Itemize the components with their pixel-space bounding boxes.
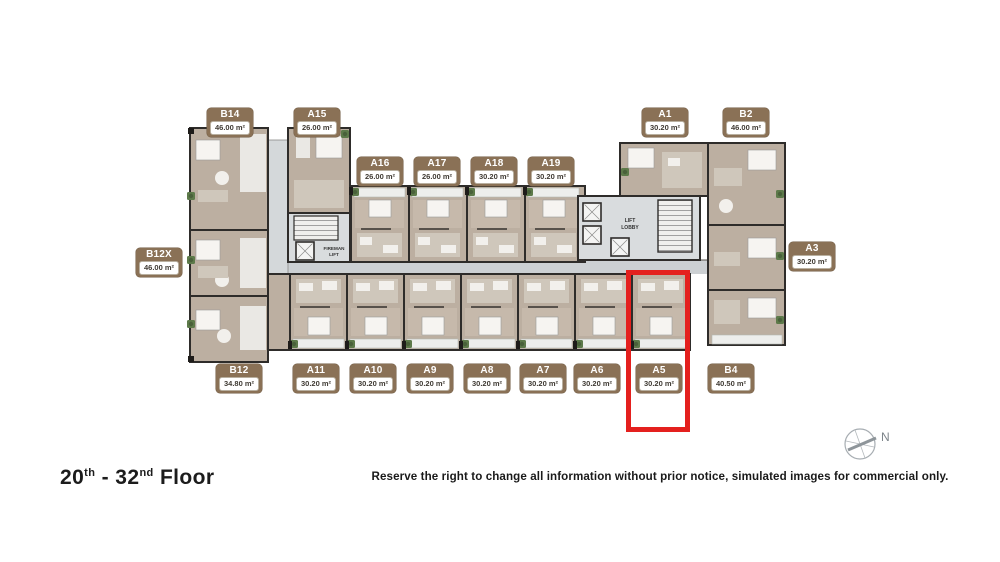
elevator-icon — [583, 226, 601, 244]
floor-from-ordinal: th — [84, 467, 95, 479]
disclaimer-text: Reserve the right to change all informat… — [340, 470, 980, 483]
unit-id: B12X — [136, 248, 182, 261]
unit-a15-plan — [288, 128, 350, 213]
right-wing — [708, 143, 785, 345]
unit-area: 46.00 m² — [726, 121, 766, 135]
unit-area: 30.20 m² — [353, 377, 393, 391]
unit-badge-a7[interactable]: A7 30.20 m² — [520, 364, 566, 393]
unit-badge-a15[interactable]: A15 26.00 m² — [294, 108, 340, 137]
fireman-lift-icon — [296, 242, 314, 260]
elevator-icon — [583, 203, 601, 221]
fireman-lift-core: FIREMAN LIFT — [288, 213, 350, 262]
unit-badge-a18[interactable]: A18 30.20 m² — [471, 157, 517, 186]
unit-badge-a17[interactable]: A17 26.00 m² — [414, 157, 460, 186]
unit-area: 26.00 m² — [297, 121, 337, 135]
unit-area: 26.00 m² — [417, 170, 457, 184]
unit-id: A6 — [574, 364, 620, 377]
floor-suffix: Floor — [160, 466, 215, 489]
floor-to: 32 — [115, 466, 139, 489]
north-label: N — [881, 430, 890, 444]
unit-badge-a9[interactable]: A9 30.20 m² — [407, 364, 453, 393]
unit-a6-plan — [573, 275, 632, 349]
unit-badge-a1[interactable]: A1 30.20 m² — [642, 108, 688, 137]
unit-id: A11 — [293, 364, 339, 377]
unit-id: A8 — [464, 364, 510, 377]
unit-id: A15 — [294, 108, 340, 121]
unit-id: B2 — [723, 108, 769, 121]
unit-a7-plan — [516, 275, 575, 349]
unit-id: B12 — [216, 364, 262, 377]
stairwell-icon — [294, 216, 338, 240]
unit-id: A16 — [357, 157, 403, 170]
unit-badge-b12[interactable]: B12 34.80 m² — [216, 364, 262, 393]
floor-separator: - — [102, 466, 109, 489]
unit-a16-plan — [349, 187, 408, 261]
elevator-icon — [611, 238, 629, 256]
unit-id: A3 — [789, 242, 835, 255]
unit-area: 34.80 m² — [219, 377, 259, 391]
unit-id: A9 — [407, 364, 453, 377]
unit-a9-plan — [402, 275, 461, 349]
unit-a17-plan — [407, 187, 466, 261]
floor-to-ordinal: nd — [139, 467, 153, 479]
lift-lobby-label-line2: LOBBY — [621, 225, 639, 231]
unit-area: 30.20 m² — [531, 170, 571, 184]
floor-range-label: 20th - 32nd Floor — [60, 466, 214, 490]
lift-lobby-label-line1: LIFT — [625, 218, 636, 224]
unit-area: 30.20 m² — [645, 121, 685, 135]
unit-area: 40.50 m² — [711, 377, 751, 391]
unit-badge-b4[interactable]: B4 40.50 m² — [708, 364, 754, 393]
unit-badge-a10[interactable]: A10 30.20 m² — [350, 364, 396, 393]
unit-a8-plan — [459, 275, 518, 349]
unit-area: 30.20 m² — [474, 170, 514, 184]
unit-badge-b12x[interactable]: B12X 46.00 m² — [136, 248, 182, 277]
connector-corridor — [268, 140, 288, 274]
unit-area: 30.20 m² — [410, 377, 450, 391]
unit-area: 46.00 m² — [139, 261, 179, 275]
unit-a18-plan — [465, 187, 524, 261]
fireman-lift-label-line1: FIREMAN — [324, 246, 346, 251]
unit-id: A1 — [642, 108, 688, 121]
unit-id: A7 — [520, 364, 566, 377]
highlight-box-a5 — [626, 270, 690, 432]
unit-badge-a6[interactable]: A6 30.20 m² — [574, 364, 620, 393]
unit-area: 30.20 m² — [296, 377, 336, 391]
unit-id: A19 — [528, 157, 574, 170]
fireman-lift-label-line2: LIFT — [329, 252, 339, 257]
unit-id: B14 — [207, 108, 253, 121]
unit-badge-a8[interactable]: A8 30.20 m² — [464, 364, 510, 393]
unit-area: 46.00 m² — [210, 121, 250, 135]
left-wing — [187, 128, 268, 362]
unit-id: A10 — [350, 364, 396, 377]
unit-badge-b2[interactable]: B2 46.00 m² — [723, 108, 769, 137]
unit-id: B4 — [708, 364, 754, 377]
unit-a11-plan — [288, 275, 347, 349]
lift-lobby-core: LIFT LOBBY — [578, 196, 700, 260]
floor-plan-page: FIREMAN LIFT LIFT LOBBY — [0, 0, 1000, 562]
unit-area: 26.00 m² — [360, 170, 400, 184]
stairwell-icon — [658, 200, 692, 252]
unit-a1-plan — [620, 143, 708, 196]
unit-id: A17 — [414, 157, 460, 170]
unit-a19-plan — [523, 187, 582, 261]
upper-units-row — [349, 186, 585, 262]
unit-area: 30.20 m² — [523, 377, 563, 391]
unit-area: 30.20 m² — [577, 377, 617, 391]
unit-badge-a16[interactable]: A16 26.00 m² — [357, 157, 403, 186]
unit-badge-a19[interactable]: A19 30.20 m² — [528, 157, 574, 186]
compass-icon: N — [845, 429, 890, 459]
unit-a10-plan — [345, 275, 404, 349]
unit-area: 30.20 m² — [467, 377, 507, 391]
unit-badge-a11[interactable]: A11 30.20 m² — [293, 364, 339, 393]
unit-id: A18 — [471, 157, 517, 170]
floor-from: 20 — [60, 466, 84, 489]
unit-badge-b14[interactable]: B14 46.00 m² — [207, 108, 253, 137]
unit-area: 30.20 m² — [792, 255, 832, 269]
unit-badge-a3[interactable]: A3 30.20 m² — [789, 242, 835, 271]
